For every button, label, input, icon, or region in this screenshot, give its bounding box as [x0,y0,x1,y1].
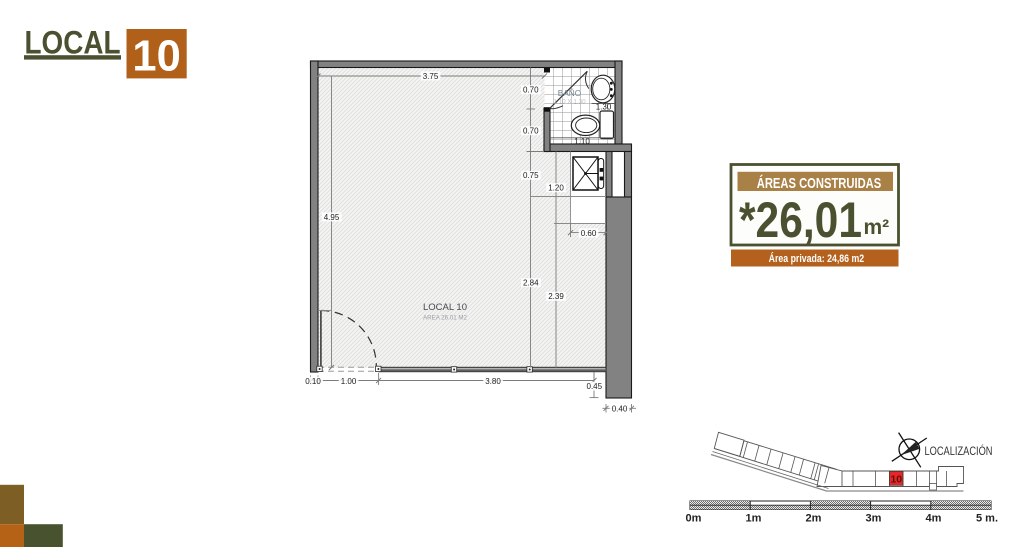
svg-text:1.20: 1.20 [548,184,564,193]
svg-text:2.84: 2.84 [523,279,539,288]
svg-text:Área privada: 24,86 m2: Área privada: 24,86 m2 [769,252,865,265]
svg-text:AREA 26.01 M2: AREA 26.01 M2 [423,314,467,321]
svg-text:4.95: 4.95 [324,213,340,222]
svg-text:LOCAL 10: LOCAL 10 [423,302,467,313]
svg-text:2.39: 2.39 [548,292,564,301]
svg-text:LOCAL: LOCAL [25,24,121,60]
svg-text:0m: 0m [686,513,702,525]
svg-text:ÁREAS CONSTRUIDAS: ÁREAS CONSTRUIDAS [757,175,882,192]
svg-text:4m: 4m [926,513,942,525]
svg-text:1.00: 1.00 [341,377,357,386]
svg-text:5 m.: 5 m. [976,513,998,525]
svg-text:1m: 1m [746,513,762,525]
svg-text:0.70: 0.70 [523,127,539,136]
svg-text:10: 10 [890,473,902,485]
svg-text:0.45: 0.45 [587,382,603,391]
svg-text:1.30: 1.30 [596,103,612,112]
svg-text:0.60: 0.60 [581,229,597,238]
svg-text:m²: m² [864,216,890,239]
svg-text:10: 10 [132,32,180,80]
svg-text:0.10: 0.10 [305,377,321,386]
svg-text:0.40: 0.40 [612,405,628,414]
svg-text:3.80: 3.80 [485,377,501,386]
svg-text:LOCALIZACIÓN: LOCALIZACIÓN [925,445,993,458]
svg-text:BAÑO: BAÑO [558,88,582,98]
svg-text:*26,01: *26,01 [739,192,862,248]
svg-text:3.75: 3.75 [423,72,439,81]
svg-text:1.10: 1.10 [574,137,590,146]
svg-text:2m: 2m [806,513,822,525]
svg-text:0.70: 0.70 [523,86,539,95]
svg-text:1.10 X 1.30: 1.10 X 1.30 [553,99,586,106]
svg-text:0.75: 0.75 [523,171,539,180]
svg-text:3m: 3m [866,513,882,525]
